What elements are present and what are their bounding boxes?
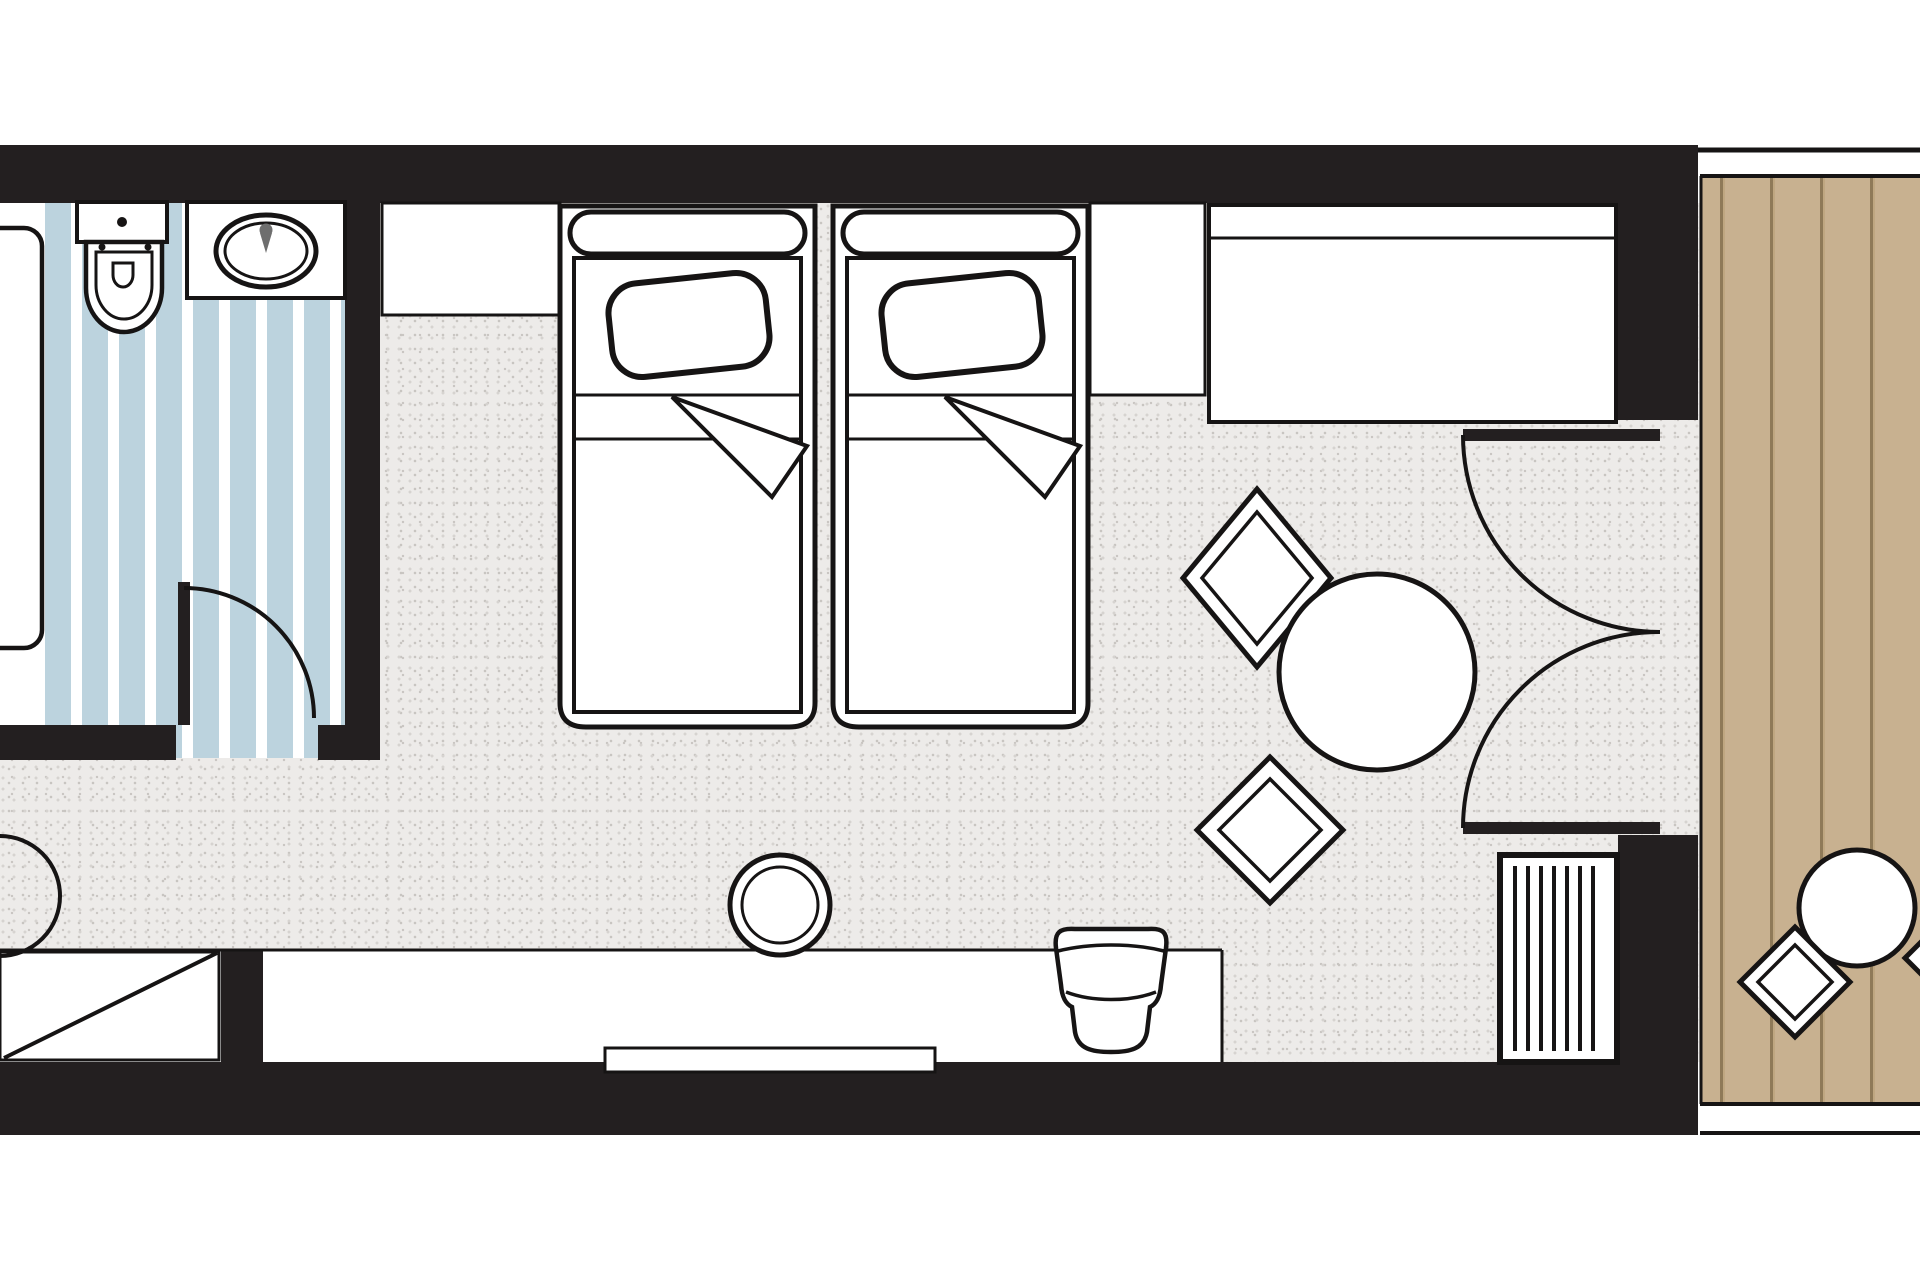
wall-bathroom-right: [345, 203, 380, 760]
lounge-corner: [1183, 489, 1475, 903]
pillow: [879, 270, 1046, 380]
twin-bed-1: [560, 206, 815, 727]
tv: [605, 1048, 935, 1072]
desk-stool: [730, 855, 830, 955]
door-swing-arc-top: [1463, 435, 1660, 632]
sink-vanity: [187, 202, 345, 298]
door-leaf-top: [1463, 429, 1660, 441]
toilet: [77, 202, 167, 332]
wall-bathroom-bottom-left: [0, 725, 176, 760]
louver-box: [1500, 855, 1617, 1062]
bathroom-door-swing-arc: [184, 588, 314, 718]
twin-bed-2: [833, 206, 1088, 727]
closet: [382, 203, 560, 315]
plan-linework: [0, 0, 1920, 1280]
toilet-button: [117, 217, 127, 227]
pillow: [606, 270, 773, 380]
louver-cabinet: [1500, 855, 1617, 1062]
nightstand: [1090, 203, 1205, 395]
door-leaf-bottom: [1463, 822, 1660, 834]
headboard: [570, 212, 805, 254]
round-table: [1279, 574, 1475, 770]
french-balcony-doors: [1463, 429, 1660, 834]
toilet-hinge-right: [145, 244, 152, 251]
wall-desk-partition: [221, 950, 263, 1062]
bathroom-door-leaf: [178, 582, 190, 725]
wall-right-upper: [1617, 203, 1698, 420]
desk-area: [0, 855, 1222, 1072]
door-swing-arc-bottom: [1463, 632, 1659, 828]
bathroom: [0, 202, 345, 725]
sofa: [1209, 205, 1616, 422]
balcony: [1698, 150, 1920, 1133]
entrance-door-swing-arc: [0, 836, 60, 956]
wall-bathroom-bottom-right: [318, 725, 380, 760]
toilet-hinge-left: [99, 244, 106, 251]
wall-top: [0, 145, 1698, 203]
floor-plan: [0, 0, 1920, 1280]
bathtub: [0, 228, 42, 648]
headboard: [843, 212, 1078, 254]
bathroom-door: [178, 582, 314, 725]
louver-slats: [1515, 866, 1593, 1051]
